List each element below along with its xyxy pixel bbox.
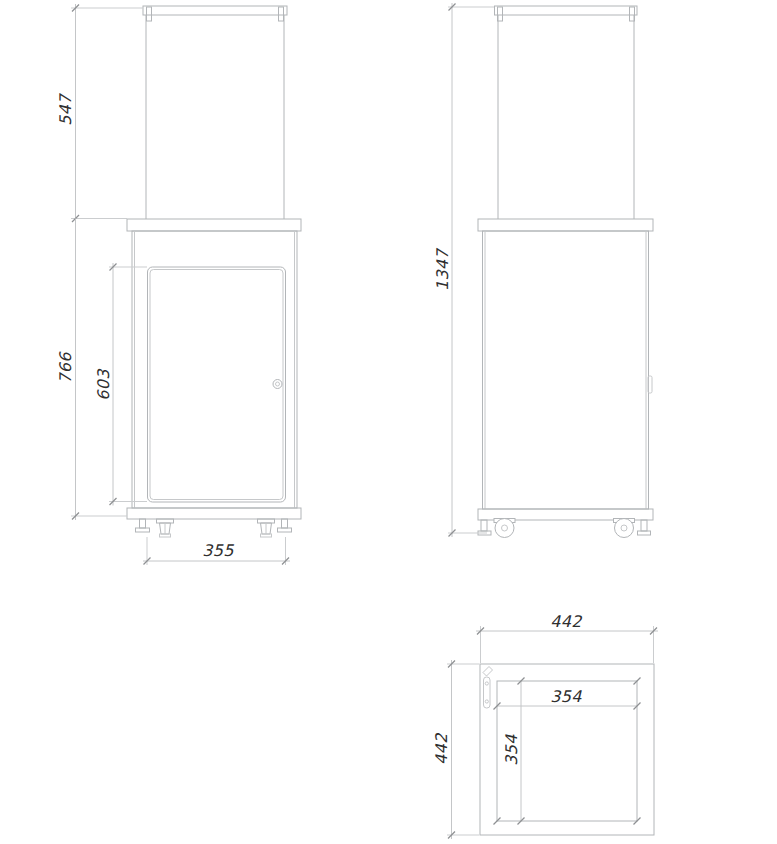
side-glass-frame [495, 6, 638, 219]
side-caster-right [614, 519, 635, 538]
front-foot-right-base [278, 528, 292, 532]
bracket-clip [483, 667, 493, 677]
front-cabinet [127, 219, 301, 519]
dim-glass-section-height: 547 [56, 4, 143, 222]
dim-overall-width: 442 [476, 612, 658, 663]
front-glass-frame [143, 6, 287, 219]
front-foot-right-stem [282, 519, 288, 528]
door-lock-knob [273, 380, 282, 389]
dim-base-width: 355 [143, 537, 290, 565]
front-caster-right [258, 519, 275, 537]
front-feet [136, 519, 292, 537]
side-view: 1347 [433, 3, 653, 538]
front-door-inner-line [150, 270, 283, 500]
dim-label-766: 766 [56, 351, 75, 384]
dim-label-603: 603 [94, 368, 113, 401]
dim-inner-depth: 354 [502, 678, 525, 825]
dim-door-height: 603 [94, 263, 147, 506]
side-cap-plate [478, 219, 653, 231]
front-post-right [279, 7, 284, 21]
caster-wheel-left [495, 519, 514, 538]
top-burner-bracket [483, 667, 493, 709]
front-foot-left-base [136, 528, 150, 532]
front-body [132, 231, 297, 508]
front-foot-left-stem [140, 519, 146, 528]
front-base-plate [127, 508, 301, 519]
dim-label-442-width: 442 [550, 612, 583, 631]
front-caster-left [157, 519, 174, 537]
side-foot-right-stem [641, 520, 647, 531]
dim-label-354-width: 354 [550, 687, 582, 706]
dim-label-354-depth: 354 [502, 734, 521, 766]
caster-wheel-right [615, 519, 634, 538]
side-feet [478, 519, 651, 538]
dim-overall-depth: 442 [432, 660, 479, 839]
front-door [148, 267, 286, 502]
side-top-bar [495, 6, 638, 15]
dim-inner-width: 354 [494, 687, 641, 710]
side-foot-left-stem [481, 520, 487, 531]
side-cabinet [478, 219, 653, 520]
side-body [483, 231, 649, 509]
front-top-bar [143, 6, 287, 15]
side-foot-right-base [638, 531, 651, 535]
front-cap-plate [127, 219, 301, 231]
technical-drawing: 547 766 603 355 [0, 0, 777, 844]
dim-label-442-depth: 442 [432, 732, 451, 765]
dim-label-547: 547 [56, 93, 75, 126]
front-post-left [147, 7, 152, 21]
side-caster-left [494, 519, 515, 538]
dim-label-1347: 1347 [433, 248, 452, 291]
drawing-canvas: 547 766 603 355 [0, 0, 777, 844]
top-view: 442 442 354 354 [432, 612, 658, 839]
dim-label-355: 355 [202, 541, 234, 560]
front-view: 547 766 603 355 [56, 4, 301, 565]
